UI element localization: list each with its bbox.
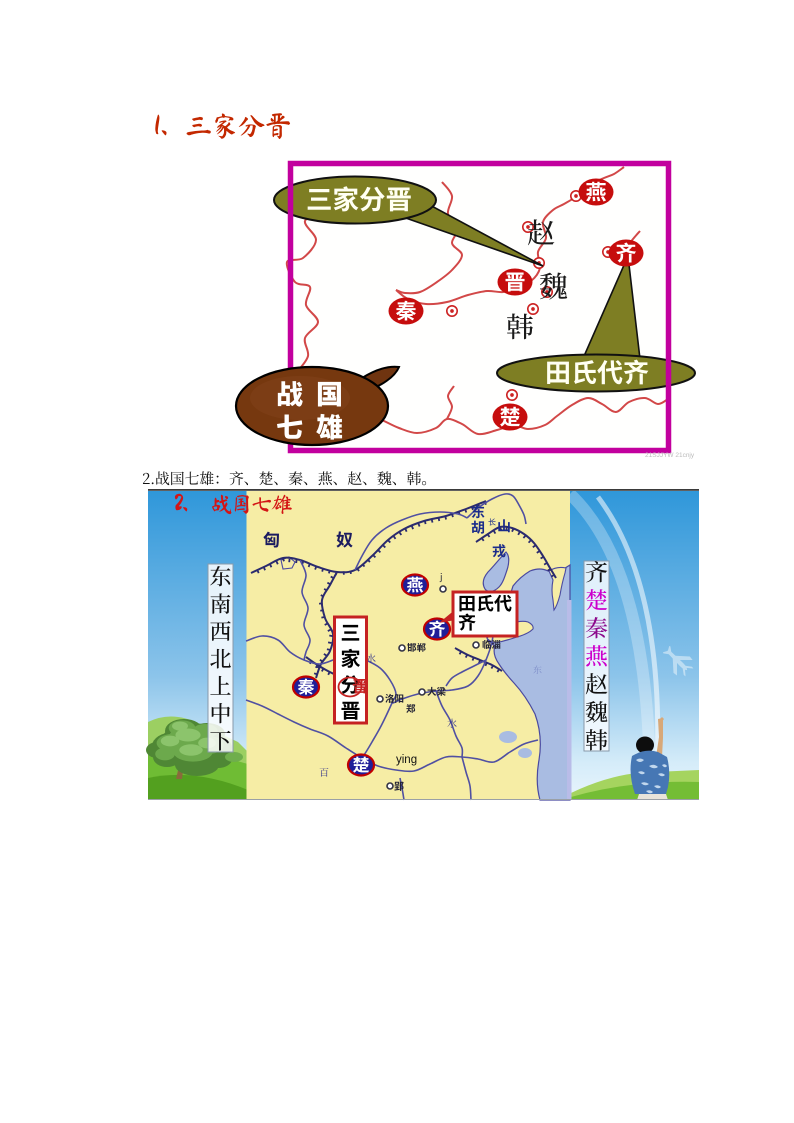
svg-text:21SJJYW 21cnjy: 21SJJYW 21cnjy (645, 452, 695, 459)
svg-text:ying: ying (396, 754, 417, 766)
